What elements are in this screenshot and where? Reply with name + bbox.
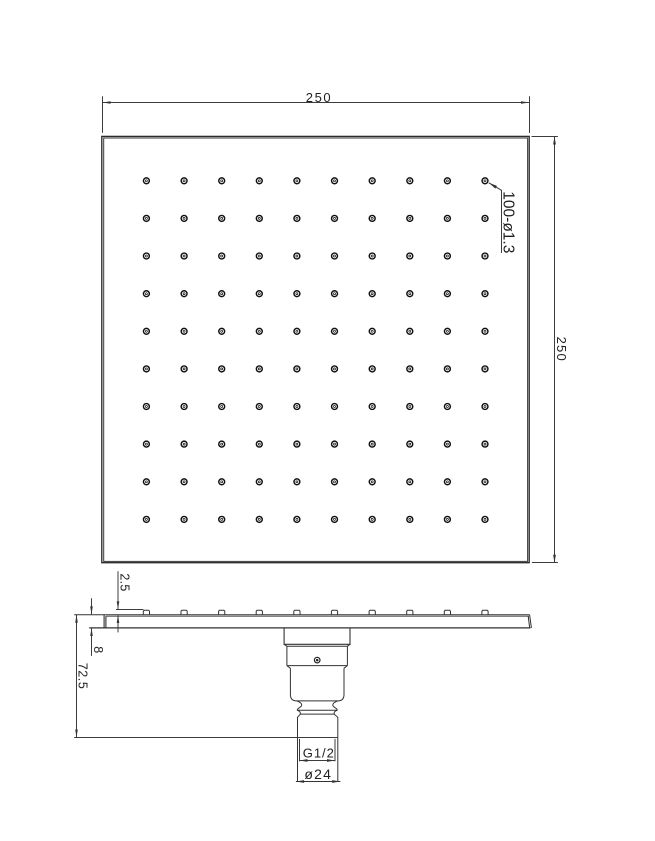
svg-text:G1/2: G1/2	[303, 746, 335, 761]
svg-text:72.5: 72.5	[76, 663, 90, 690]
svg-text:8: 8	[91, 646, 105, 653]
svg-text:2.5: 2.5	[118, 573, 132, 591]
svg-text:ø24: ø24	[304, 766, 332, 782]
svg-text:100-ø1.3: 100-ø1.3	[500, 191, 517, 253]
svg-text:250: 250	[554, 337, 569, 362]
svg-text:250: 250	[306, 90, 333, 105]
